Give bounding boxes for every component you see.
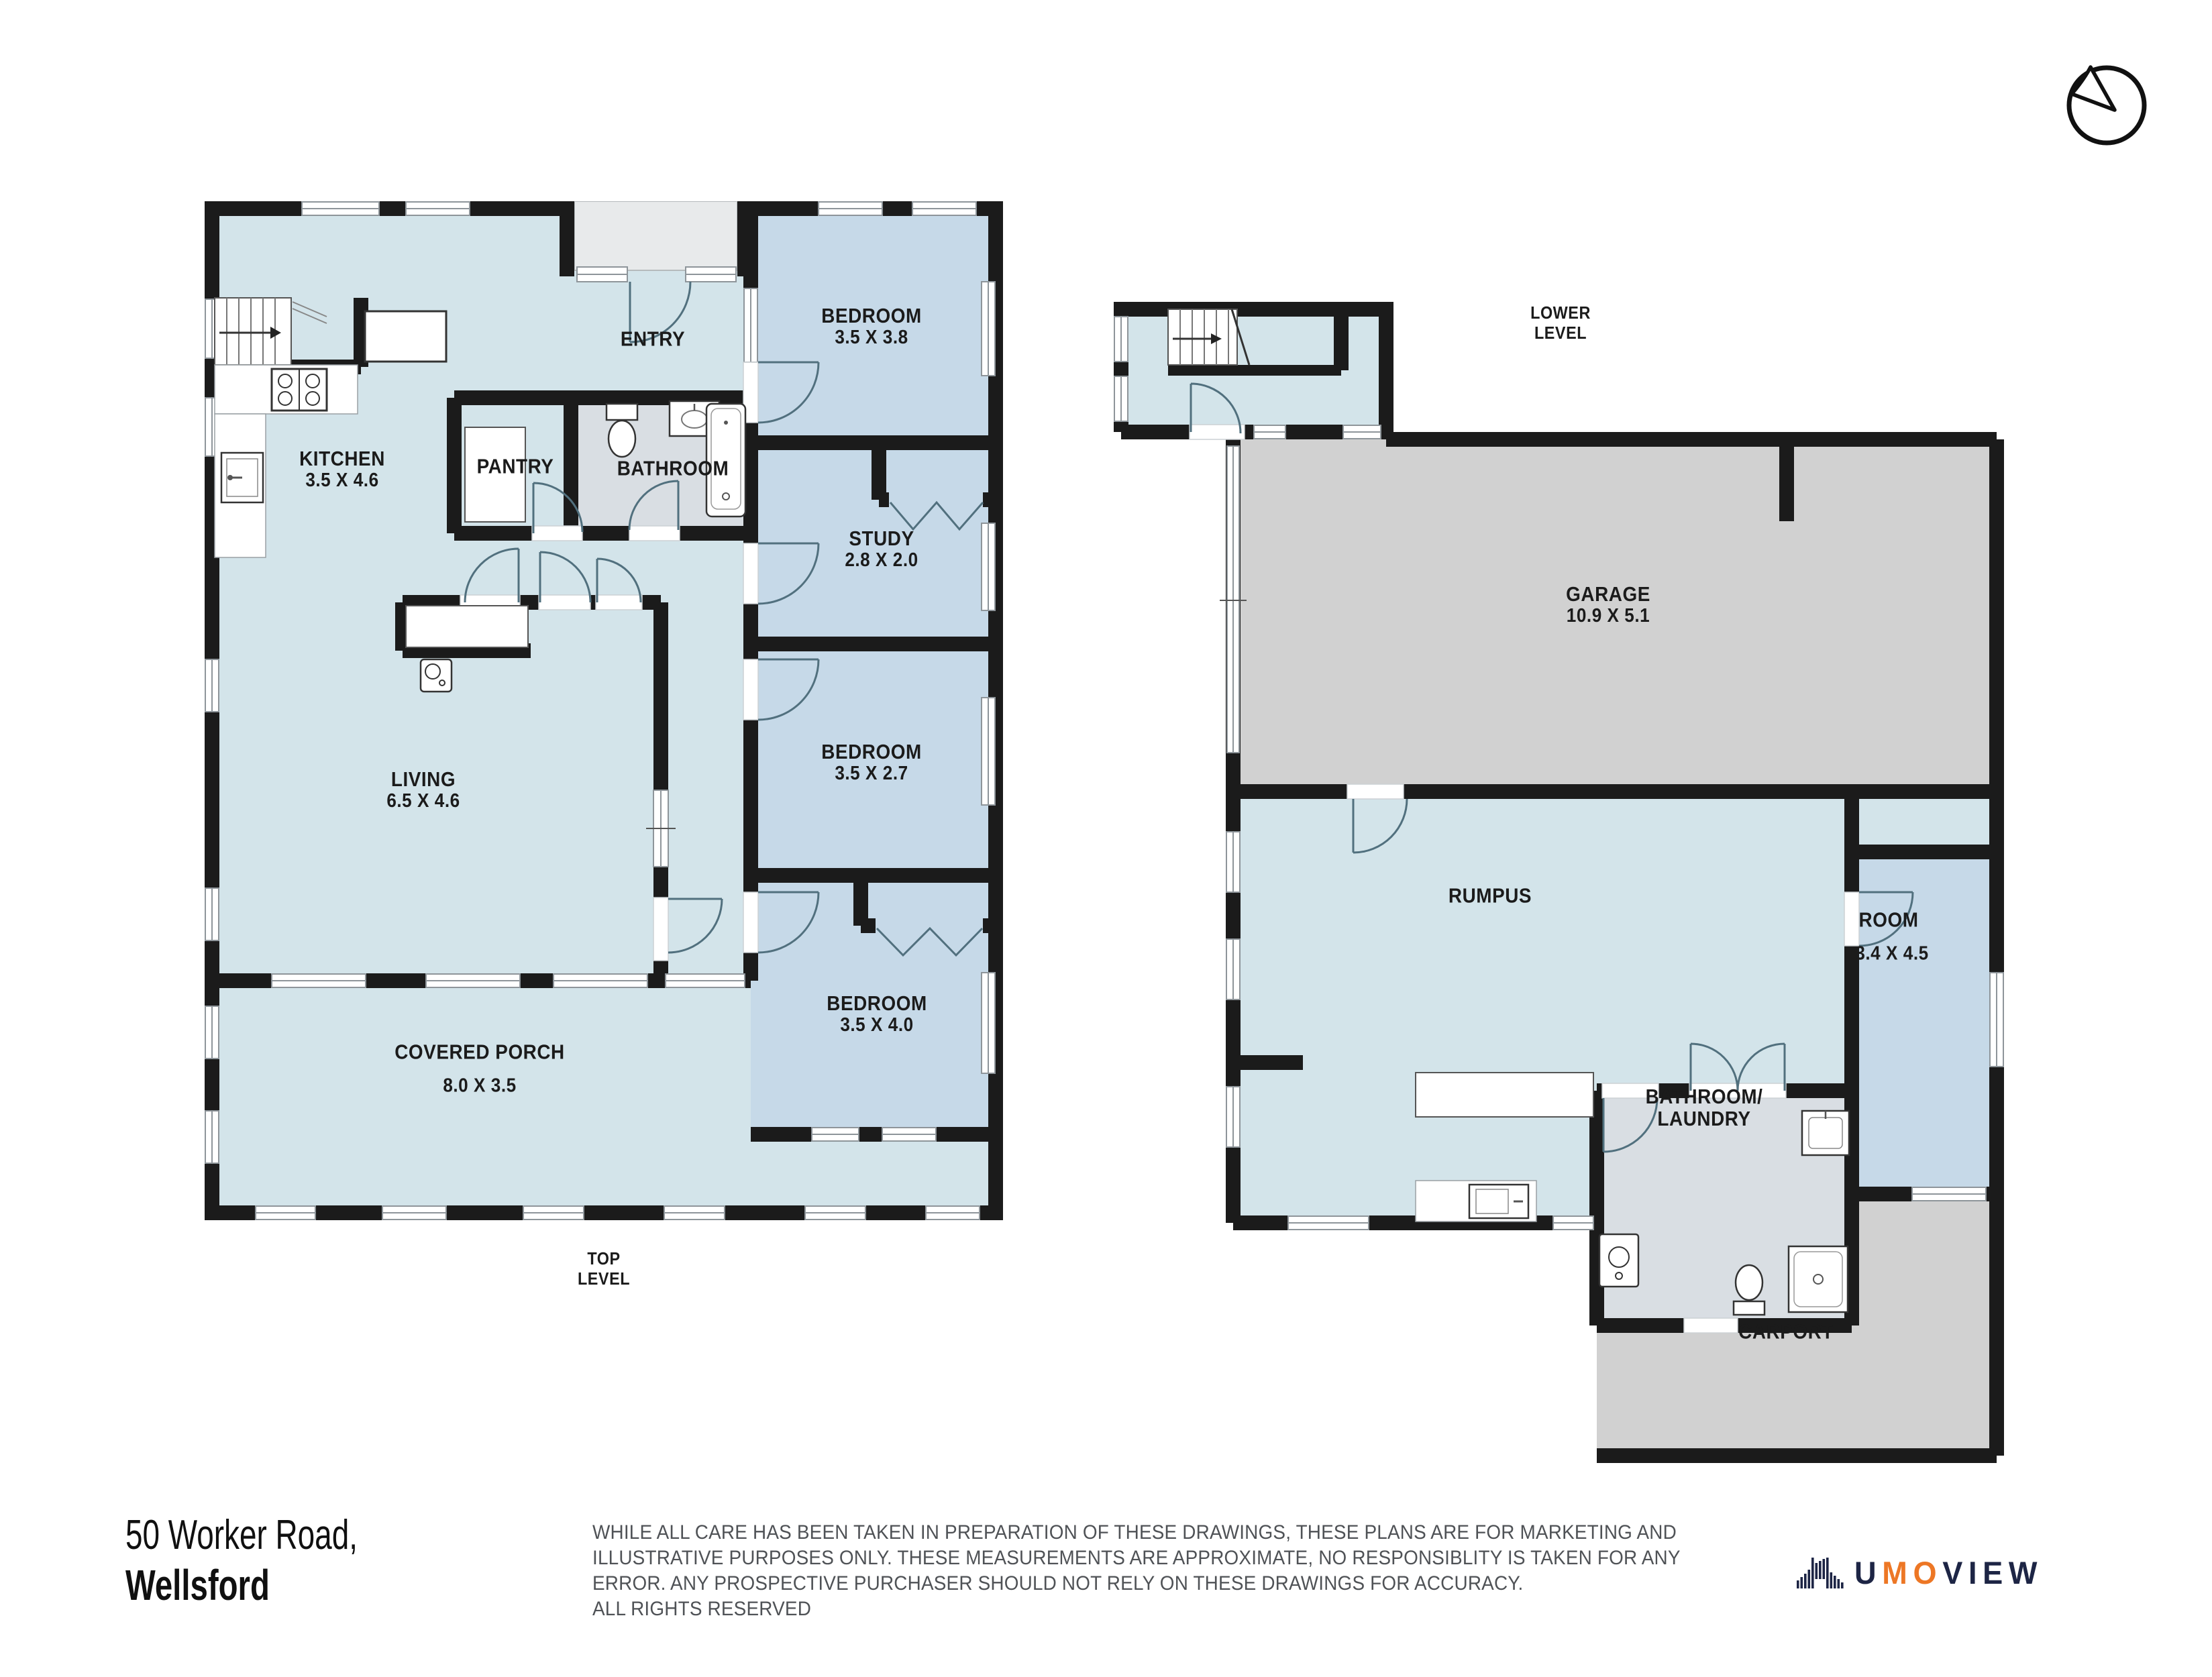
hot-water-cylinder-icon <box>421 659 452 692</box>
disclaimer-text: WHILE ALL CARE HAS BEEN TAKEN IN PREPARA… <box>592 1520 1681 1622</box>
compass-icon <box>2060 58 2154 152</box>
room-label-covered-porch-dims: 8.0 X 3.5 <box>443 1075 516 1097</box>
room-label-study: STUDY2.8 X 2.0 <box>845 527 918 572</box>
room-fill <box>1852 852 1997 1194</box>
address-line-1: 50 Worker Road, <box>125 1511 358 1560</box>
room-label-pantry: PANTRY <box>477 455 554 478</box>
top-level-plan <box>205 201 1003 1228</box>
disclaimer-line: ALL RIGHTS RESERVED <box>592 1597 1681 1622</box>
room-label-room-dims: 3.4 X 4.5 <box>1855 943 1928 965</box>
umoview-logo-icon <box>1797 1554 1845 1588</box>
kitchenette-sink-icon <box>1469 1185 1528 1218</box>
floor-plan-sheet: ENTRY BEDROOM3.5 X 3.8 KITCHEN3.5 X 4.6 … <box>0 0 2212 1677</box>
umoview-logo-text: UMOVIEW <box>1854 1557 2043 1588</box>
hall-strip-fill <box>1852 792 1997 852</box>
room-label-carport: CARPORT <box>1738 1321 1834 1343</box>
room-fills <box>212 201 996 1213</box>
room-label-bedroom3: BEDROOM3.5 X 4.0 <box>827 992 927 1036</box>
rumpus-bench <box>1416 1073 1593 1117</box>
disclaimer-line: ERROR. ANY PROSPECTIVE PURCHASER SHOULD … <box>592 1571 1681 1597</box>
lower-level-plan <box>1114 302 2013 1469</box>
disclaimer-line: ILLUSTRATIVE PURPOSES ONLY. THESE MEASUR… <box>592 1546 1681 1571</box>
plan-title-lower-level: LOWERLEVEL <box>1530 303 1591 343</box>
shower-icon <box>1789 1246 1848 1312</box>
room-fills <box>1121 309 1997 1456</box>
room-label-entry: ENTRY <box>621 328 685 350</box>
room-label-living: LIVING6.5 X 4.6 <box>386 768 460 812</box>
room-label-kitchen: KITCHEN3.5 X 4.6 <box>299 447 385 492</box>
room-label-garage: GARAGE10.9 X 5.1 <box>1566 583 1650 627</box>
room-label-rumpus: RUMPUS <box>1449 885 1532 907</box>
umoview-logo: UMOVIEW <box>1797 1554 2051 1588</box>
kitchen-sink-icon <box>221 453 263 502</box>
address-line-2: Wellsford <box>125 1560 358 1611</box>
room-label-bedroom2: BEDROOM3.5 X 2.7 <box>821 741 921 785</box>
room-label-bedroom1: BEDROOM3.5 X 3.8 <box>821 305 921 349</box>
wardrobe <box>406 606 528 647</box>
cabinet-icon <box>365 311 446 362</box>
stairs-icon <box>1168 309 1249 365</box>
entry-porch-fill <box>574 201 737 270</box>
laundry-sink-icon <box>1802 1111 1849 1155</box>
room-label-bathroom: BATHROOM <box>617 457 729 480</box>
room-label-bathroom-laundry: BATHROOM/LAUNDRY <box>1646 1085 1763 1130</box>
washing-machine-icon <box>1599 1234 1638 1287</box>
stove-icon <box>272 369 327 411</box>
room-label-room: ROOM <box>1859 909 1919 931</box>
rumpus-fill <box>1233 792 1852 1091</box>
toilet-icon <box>607 404 637 457</box>
plan-title-top-level: TOPLEVEL <box>578 1248 630 1289</box>
disclaimer-line: WHILE ALL CARE HAS BEEN TAKEN IN PREPARA… <box>592 1520 1681 1546</box>
property-address: 50 Worker Road, Wellsford <box>125 1511 358 1611</box>
room-label-covered-porch: COVERED PORCH <box>394 1041 565 1063</box>
toilet-icon <box>1734 1265 1765 1315</box>
